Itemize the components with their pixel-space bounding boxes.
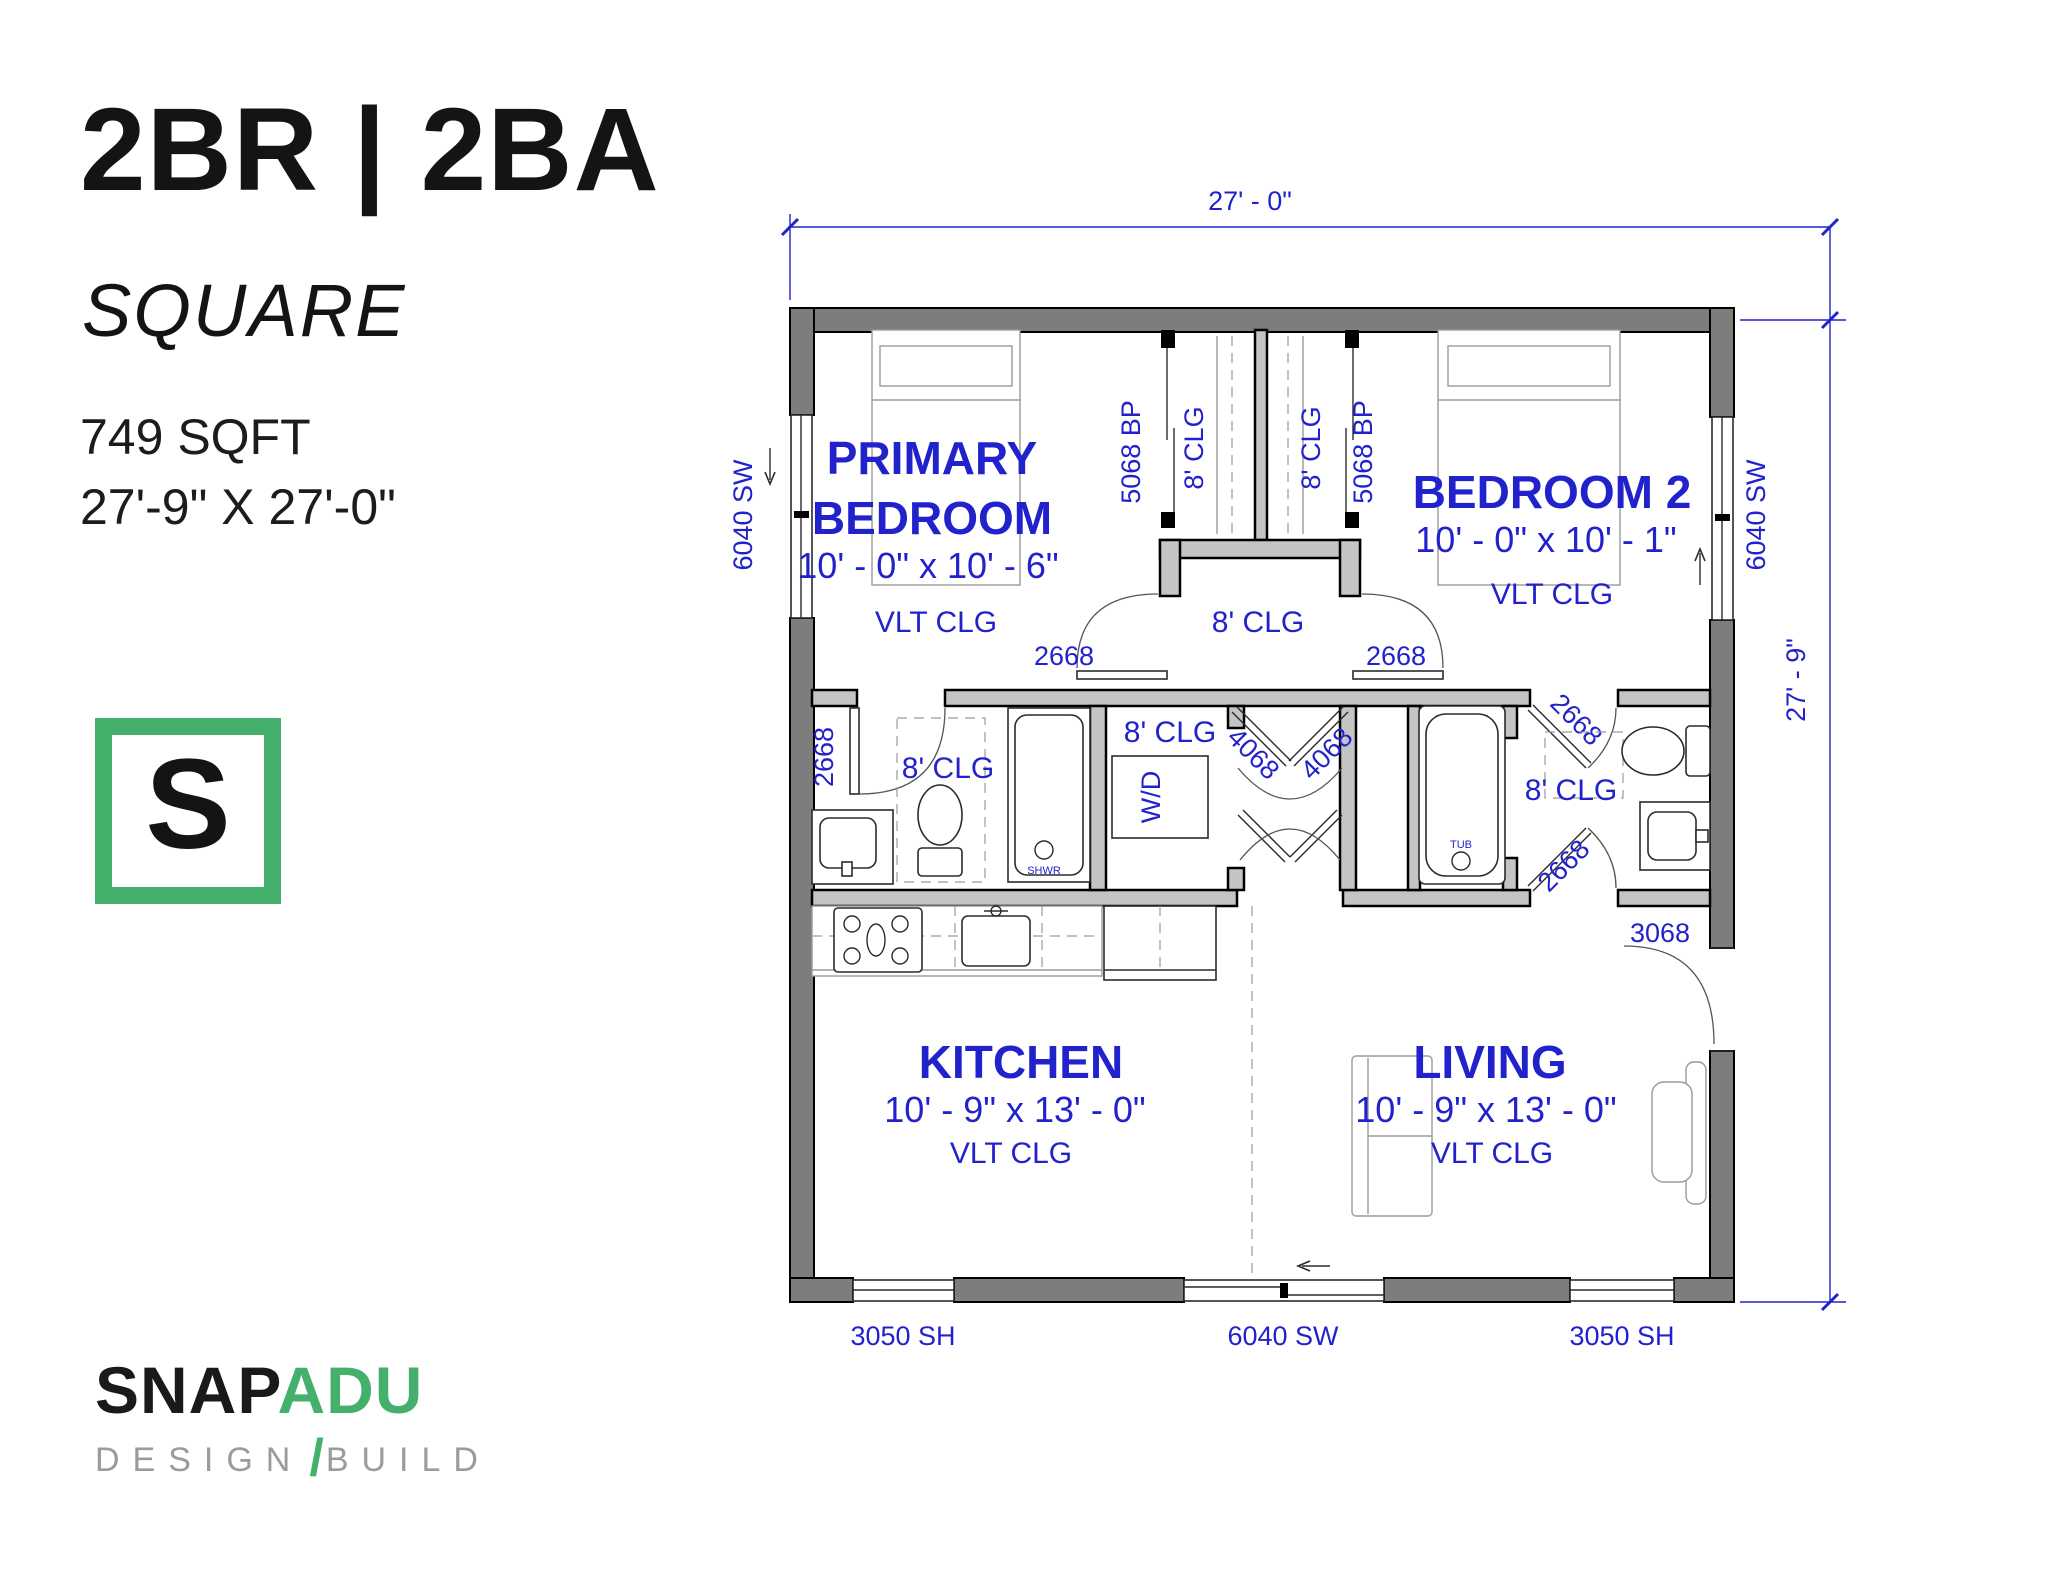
- bath2-door-top-label: 2668: [1545, 688, 1609, 752]
- window-bottom-left-3050sh: [853, 1280, 954, 1301]
- vanity-bath1: [812, 810, 893, 884]
- tub-alcove: TUB: [1419, 706, 1505, 884]
- bath1-door-label: 2668: [809, 727, 839, 787]
- window-br-label: 3050 SH: [1569, 1321, 1674, 1351]
- bifold-doors: 4068 4068: [1222, 707, 1359, 862]
- floor-plan-drawing: 27' - 0" 27' - 9": [0, 0, 2048, 1583]
- window-left-6040sw: [765, 415, 812, 618]
- primary-bedroom-name-2: BEDROOM: [812, 492, 1052, 544]
- closet-left-clg-label: 8' CLG: [1179, 406, 1209, 489]
- toilet-bath2: [1622, 726, 1710, 776]
- window-bottom-right-3050sh: [1570, 1280, 1674, 1301]
- entry-door-label: 3068: [1630, 918, 1690, 948]
- bedroom-2: BEDROOM 2 10' - 0" x 10' - 1" VLT CLG: [1413, 330, 1692, 611]
- bathroom-1: 2668 8' CLG SHWR: [809, 708, 1090, 884]
- bathroom-2: 2668 2668 8' CLG: [1525, 688, 1710, 898]
- shower-label: SHWR: [1027, 865, 1061, 877]
- living-room: LIVING 10' - 9" x 13' - 0" VLT CLG: [1252, 906, 1706, 1278]
- primary-bedroom-size: 10' - 0" x 10' - 6": [797, 545, 1058, 586]
- bifold-left-label: 4068: [1222, 722, 1286, 786]
- bath1-ceiling-label: 8' CLG: [902, 752, 994, 785]
- closet-left-bypass-label: 5068 BP: [1116, 400, 1146, 504]
- window-bl-label: 3050 SH: [850, 1321, 955, 1351]
- vanity-bath2: [1640, 802, 1710, 870]
- primary-bedroom-ceiling: VLT CLG: [875, 606, 997, 639]
- washer-dryer-label: W/D: [1136, 771, 1166, 823]
- window-right-6040sw: [1695, 417, 1733, 620]
- living-size: 10' - 9" x 13' - 0": [1355, 1089, 1616, 1130]
- closet-right-bypass-label: 5068 BP: [1348, 400, 1378, 504]
- floor-plan-sheet: 2BR | 2BA SQUARE 749 SQFT 27'-9" X 27'-0…: [0, 0, 2048, 1583]
- laundry-ceiling-label: 8' CLG: [1124, 716, 1216, 749]
- kitchen-size: 10' - 9" x 13' - 0": [884, 1089, 1145, 1130]
- primary-bedroom-name-1: PRIMARY: [827, 432, 1037, 484]
- bedroom2-ceiling: VLT CLG: [1491, 578, 1613, 611]
- kitchen: KITCHEN 10' - 9" x 13' - 0" VLT CLG: [812, 906, 1216, 1170]
- kitchen-name: KITCHEN: [919, 1036, 1123, 1088]
- closets: 5068 BP 8' CLG 8' CLG 5068 BP: [1116, 330, 1378, 534]
- bath2-ceiling-label: 8' CLG: [1525, 774, 1617, 807]
- bedroom2-size: 10' - 0" x 10' - 1": [1415, 519, 1676, 560]
- range-stove: [834, 908, 922, 972]
- primary-bedroom: PRIMARY BEDROOM 10' - 0" x 10' - 6" VLT …: [797, 330, 1058, 639]
- bath2-door-bottom-label: 2668: [1532, 834, 1596, 898]
- laundry-closet: 8' CLG W/D: [1112, 716, 1216, 838]
- dim-height-label: 27' - 9": [1781, 638, 1811, 722]
- window-bottom-center-6040sw: [1184, 1261, 1384, 1301]
- living-name: LIVING: [1413, 1036, 1566, 1088]
- window-right-label: 6040 SW: [1741, 459, 1771, 571]
- hallway-doors: 2668 2668 8' CLG: [1034, 594, 1443, 679]
- closet-right-clg-label: 8' CLG: [1296, 406, 1326, 489]
- dim-width-label: 27' - 0": [1208, 186, 1292, 216]
- hall-ceiling-label: 8' CLG: [1212, 606, 1304, 639]
- tub-label: TUB: [1450, 839, 1472, 851]
- hall-door-right-label: 2668: [1366, 641, 1426, 671]
- bedroom2-name: BEDROOM 2: [1413, 466, 1692, 518]
- toilet-bath1: [918, 785, 962, 876]
- kitchen-ceiling: VLT CLG: [950, 1137, 1072, 1170]
- shower-bath1: SHWR: [1008, 708, 1090, 882]
- window-left-label: 6040 SW: [728, 459, 758, 571]
- refrigerator: [1104, 906, 1216, 980]
- armchair: [1652, 1062, 1706, 1204]
- window-bc-label: 6040 SW: [1227, 1321, 1339, 1351]
- living-ceiling: VLT CLG: [1431, 1137, 1553, 1170]
- hall-door-left-label: 2668: [1034, 641, 1094, 671]
